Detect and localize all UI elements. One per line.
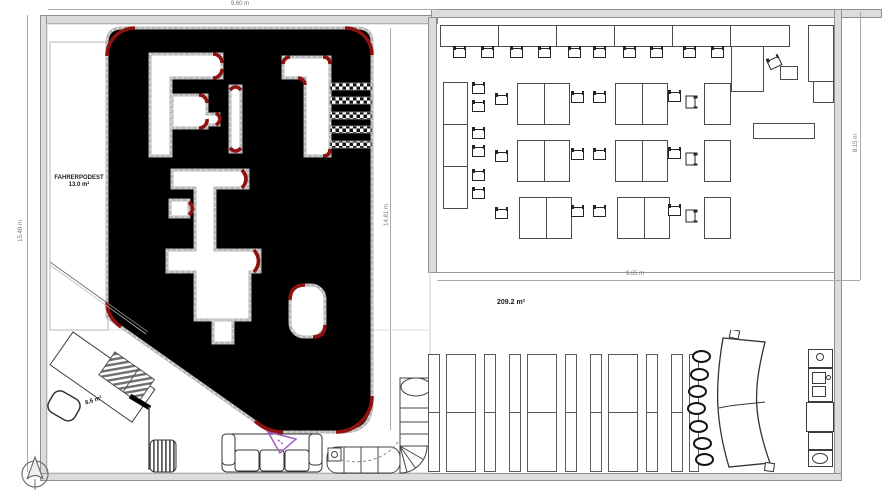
locker-cabinet: [565, 354, 577, 472]
fahrerpodest-label: FAHRERPODEST 13.0 m²: [47, 175, 111, 189]
chair-icon: [510, 48, 523, 58]
hob-dot: [816, 353, 824, 361]
dim-right-label: 8.15 m: [853, 122, 859, 164]
chair-icon: [568, 48, 581, 58]
kart-track-plan: [45, 20, 445, 475]
chair-icon: [453, 48, 466, 58]
chair-icon: [472, 129, 485, 139]
dining-table-double: [517, 83, 570, 125]
locker-cabinet: [608, 354, 638, 472]
curved-bar-counter: [715, 330, 790, 478]
corner-table: [730, 25, 790, 47]
chair-icon: [495, 209, 508, 219]
chair-icon: [593, 48, 606, 58]
striped-cabinet: [150, 440, 176, 472]
karting-floor-plan: 9.60 m 15.48 m 14.81 m 8.15 m 9.65 m: [0, 0, 889, 500]
side-table: [443, 82, 468, 125]
dining-table-single: [704, 197, 731, 239]
wall-table: [614, 25, 673, 47]
dining-table-double: [615, 83, 668, 125]
wall-table: [556, 25, 615, 47]
basin-oval: [812, 453, 828, 464]
corner-counter: [731, 46, 764, 92]
dining-table-single: [704, 140, 731, 182]
sink-basin: [812, 372, 826, 384]
wall-top-right-hall: [431, 9, 882, 18]
dim-seating-label: 9.65 m: [605, 271, 665, 277]
wall-table: [672, 25, 731, 47]
chair-icon: [481, 48, 494, 58]
chair-icon: [593, 150, 606, 160]
chair-icon: [650, 48, 663, 58]
dim-top-label: 9.60 m: [210, 1, 270, 7]
dining-table-double: [617, 197, 670, 239]
dim-left-label: 15.48 m: [18, 210, 24, 252]
locker-cabinet: [484, 354, 496, 472]
side-table: [443, 124, 468, 167]
chair-icon: [495, 152, 508, 162]
chair-icon: [538, 48, 551, 58]
faucet-dot: [826, 375, 831, 380]
dim-line-top: [48, 9, 437, 10]
chair-icon: [683, 48, 696, 58]
dining-table-double: [615, 140, 668, 182]
dim-line-right: [860, 12, 861, 280]
bar-stool-icon: [690, 368, 709, 381]
bar-stool-icon: [688, 385, 707, 398]
sink-basin: [812, 386, 826, 397]
chair-icon: [686, 96, 696, 109]
chair-icon: [472, 189, 485, 199]
locker-cabinet: [527, 354, 557, 472]
bar-stool-icon: [689, 420, 708, 433]
main-hall-area-label: 209.2 m²: [497, 299, 525, 306]
chair-icon: [472, 147, 485, 157]
locker-cabinet: [446, 354, 476, 472]
bar-stool-icon: [695, 453, 714, 466]
chair-icon: [668, 92, 681, 102]
chair-icon: [571, 93, 584, 103]
wall-table: [498, 25, 557, 47]
chair-icon: [472, 171, 485, 181]
chair-icon: [668, 206, 681, 216]
bar-stool-icon: [687, 402, 706, 415]
reception-chair: [45, 388, 83, 424]
bar-stool-icon: [692, 350, 711, 363]
chair-icon: [472, 102, 485, 112]
dining-table-double: [519, 197, 572, 239]
fahrerpodest-name: FAHRERPODEST: [47, 175, 111, 182]
wall-right: [834, 9, 842, 481]
chair-icon: [686, 210, 696, 223]
bench: [753, 123, 815, 139]
chair-icon: [668, 149, 681, 159]
dim-line-seating: [437, 280, 860, 281]
right-top-step: [813, 81, 834, 103]
chair-icon: [593, 93, 606, 103]
small-table: [780, 66, 798, 80]
side-table: [443, 166, 468, 209]
chair-icon: [571, 150, 584, 160]
chair-icon: [593, 207, 606, 217]
dim-line-left: [27, 15, 28, 472]
dining-table-double: [517, 140, 570, 182]
fahrerpodest-area: 13.0 m²: [47, 182, 111, 189]
north-arrow-icon: [8, 448, 60, 498]
right-top-counter: [808, 25, 834, 82]
chair-icon: [472, 84, 485, 94]
kitchen-unit: [808, 432, 833, 450]
locker-cabinet: [428, 354, 440, 472]
chair-icon: [686, 153, 696, 166]
wall-table: [440, 25, 499, 47]
locker-cabinet: [671, 354, 683, 472]
dining-table-single: [704, 83, 731, 125]
chair-icon: [711, 48, 724, 58]
locker-cabinet: [590, 354, 602, 472]
chair-icon: [571, 207, 584, 217]
bar-stool-icon: [693, 437, 712, 450]
chair-icon: [495, 95, 508, 105]
kitchen-counter: [806, 402, 834, 432]
locker-cabinet: [646, 354, 658, 472]
locker-cabinet: [509, 354, 521, 472]
chair-icon: [623, 48, 636, 58]
